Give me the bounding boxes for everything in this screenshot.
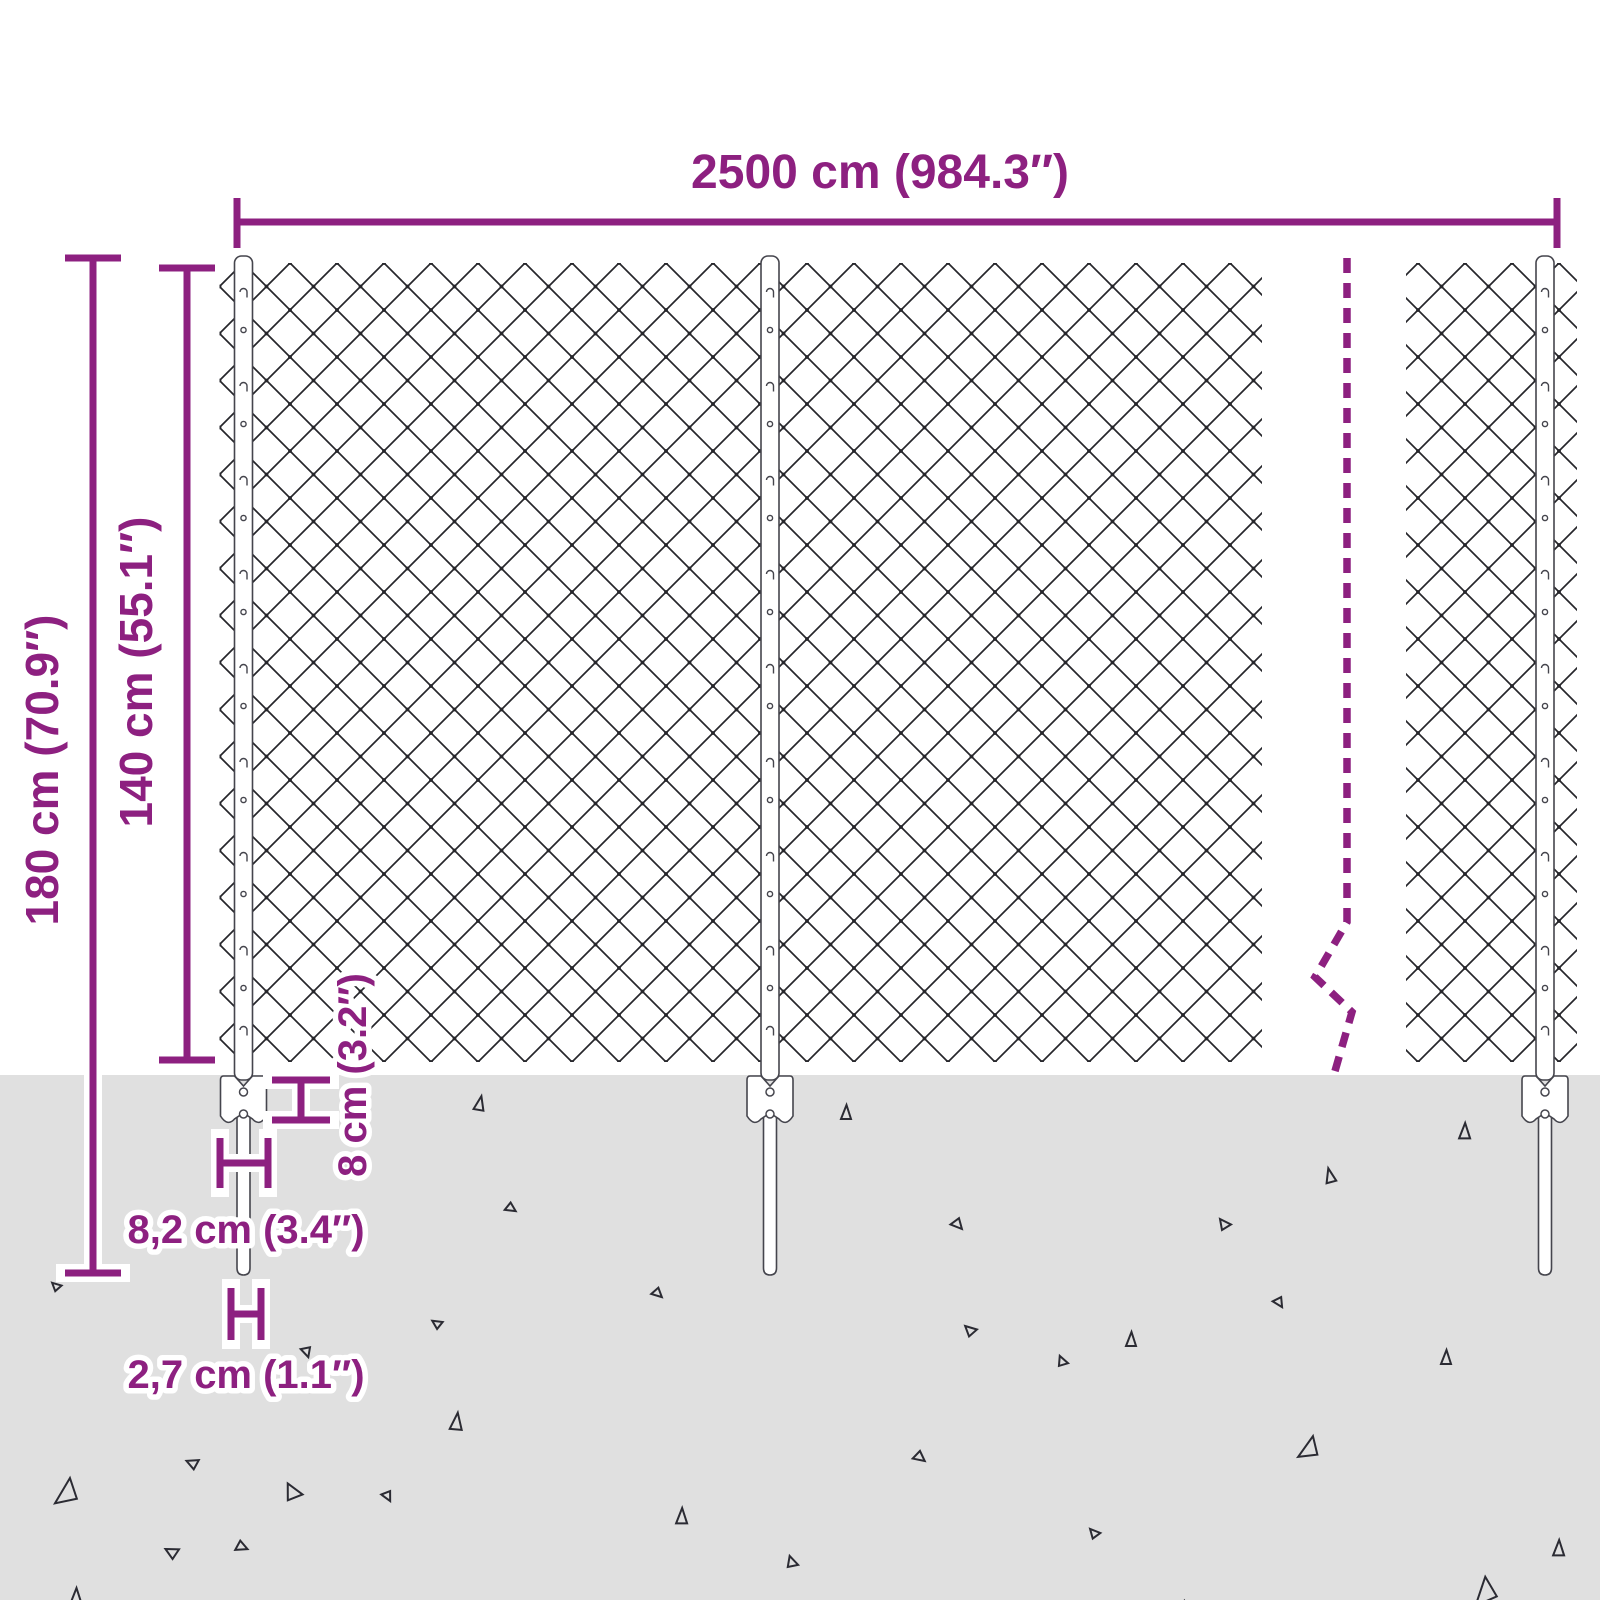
dimension-line-top-width xyxy=(237,198,1557,248)
diagram-svg: 2500 cm (984.3″) 180 cm (70.9″) 140 cm (… xyxy=(0,0,1600,1600)
label-top-width: 2500 cm (984.3″) xyxy=(691,146,1069,199)
dimension-line-mesh-height xyxy=(159,268,215,1060)
label-anchor-width: 8,2 cm (3.4″) xyxy=(127,1208,364,1252)
label-mesh-height: 140 cm (55.1″) xyxy=(110,517,162,828)
label-spike-width: 2,7 cm (1.1″) xyxy=(127,1353,364,1397)
fence-post-left xyxy=(235,256,253,1080)
label-total-height: 180 cm (70.9″) xyxy=(16,615,68,926)
fence-post-middle xyxy=(761,256,779,1080)
chain-link-mesh-main xyxy=(220,263,1263,1062)
fence-post-right xyxy=(1536,256,1554,1080)
label-anchor-height: 8 cm (3.2″) xyxy=(331,973,375,1177)
fence-dimension-diagram: 2500 cm (984.3″) 180 cm (70.9″) 140 cm (… xyxy=(0,0,1600,1600)
break-line xyxy=(1315,258,1352,1078)
